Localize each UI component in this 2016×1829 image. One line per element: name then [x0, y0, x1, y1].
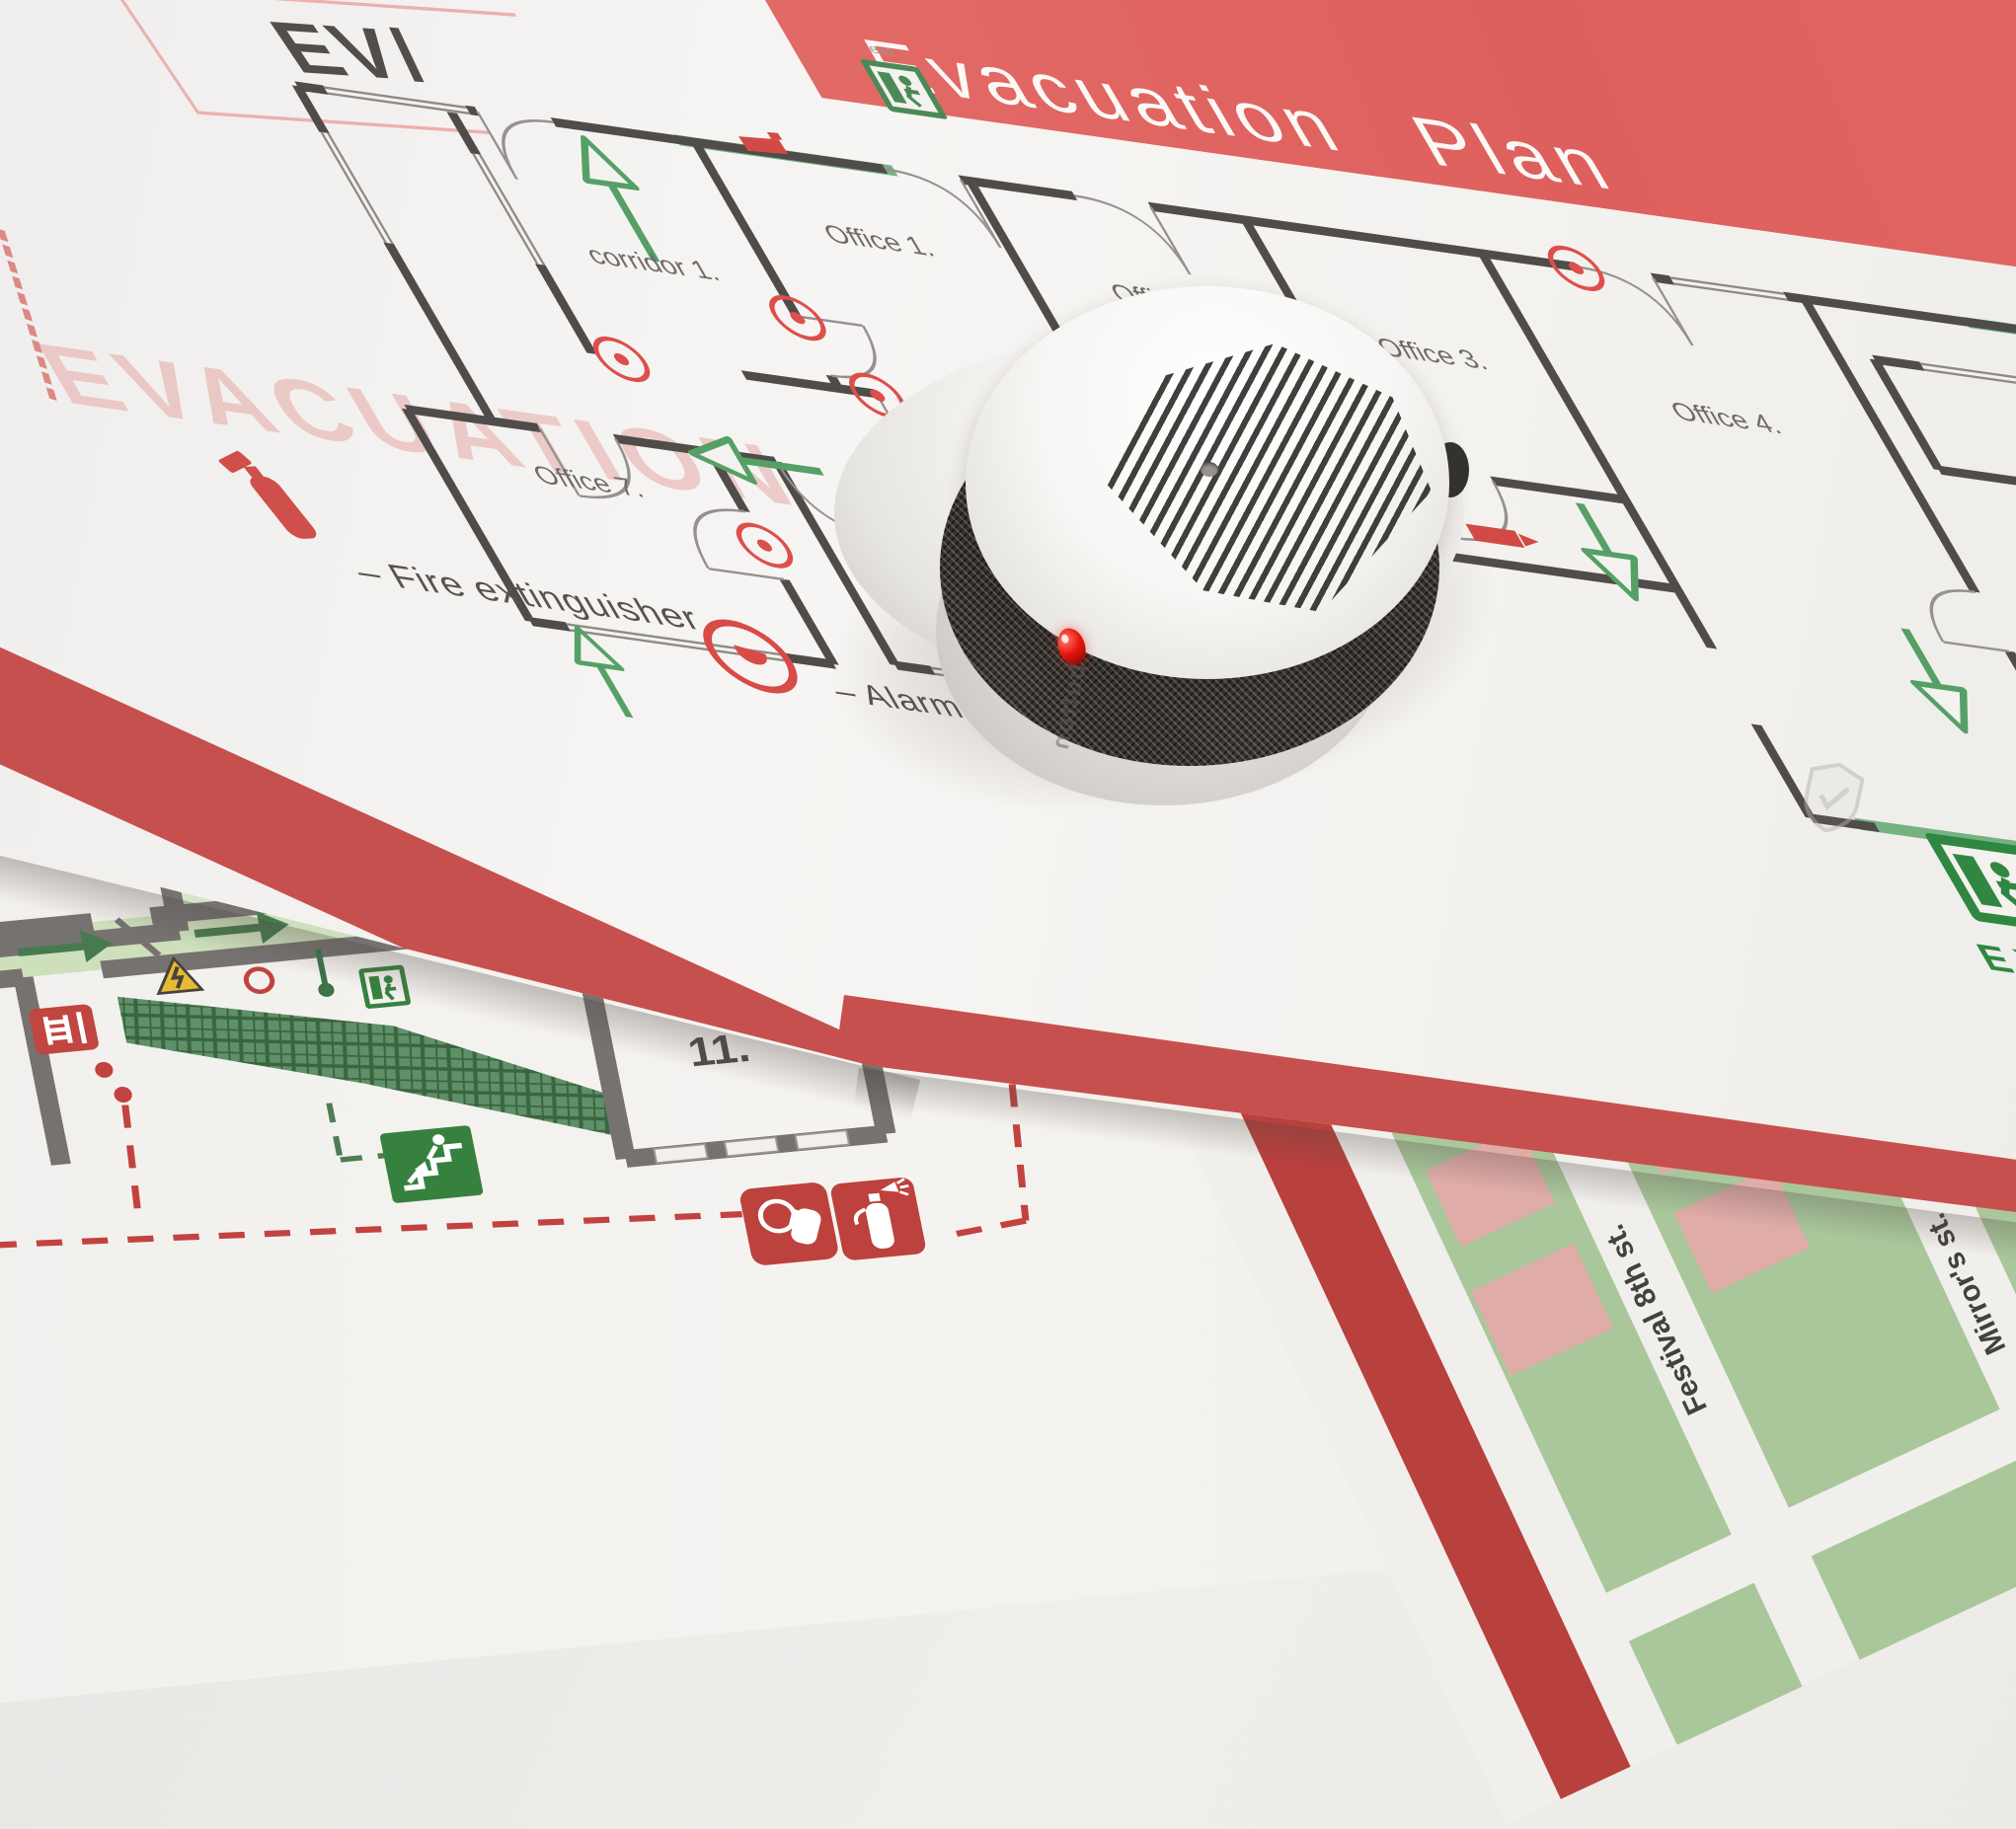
fire-extinguisher-square-icon	[829, 1177, 927, 1261]
detector-vent-slots	[1106, 343, 1432, 612]
office4-label: Office 4.	[1666, 397, 1788, 440]
exit-sign-bottom	[1923, 832, 2016, 935]
photo-of-evacuation-plans: { "banner": { "title": "Evacuation Plan"…	[0, 0, 2016, 1346]
office1-label: Office 1.	[818, 219, 941, 263]
exit-sign-top	[859, 58, 949, 119]
room11-windows	[654, 1130, 849, 1163]
exit-large-label: EXIT	[1970, 937, 2016, 997]
open-alarm-circle	[244, 967, 273, 992]
detector-center-hole	[1201, 462, 1218, 477]
stairs-exit-icon	[379, 1125, 484, 1203]
push-button-hand-icon	[738, 1181, 840, 1266]
corridor1-label: corridor 1.	[581, 240, 725, 286]
detector-top-cap	[966, 286, 1449, 679]
ladder-icon	[28, 1004, 100, 1055]
